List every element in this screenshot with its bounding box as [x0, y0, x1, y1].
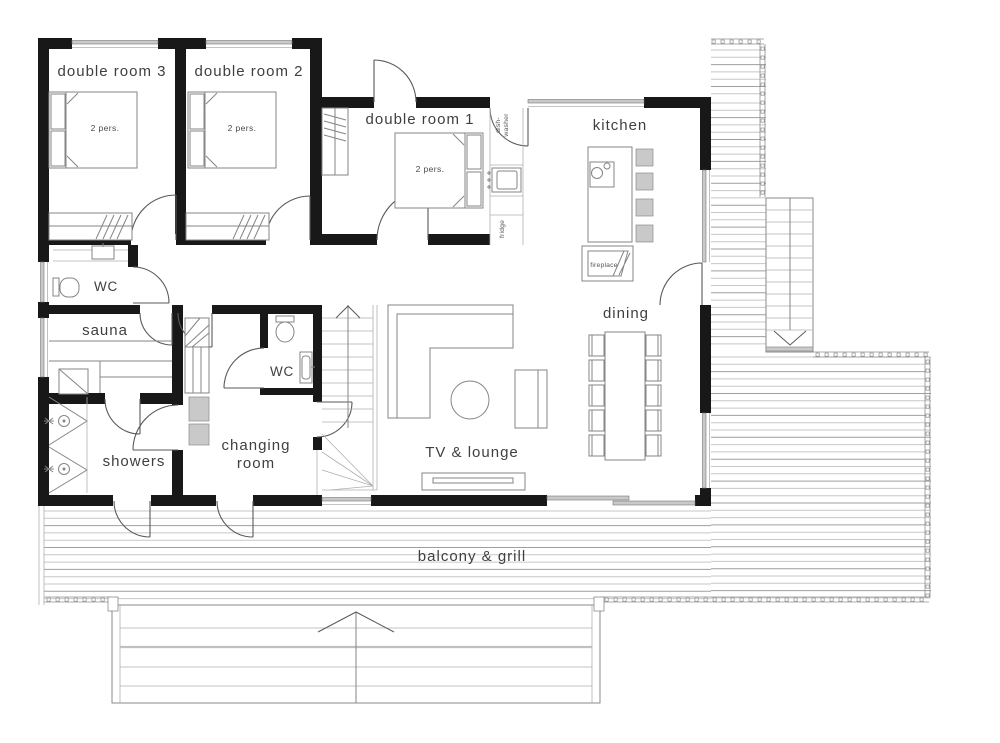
tv-stand: [422, 473, 525, 490]
toilet-icon: [276, 322, 294, 342]
label-showers: showers: [103, 453, 166, 470]
door-showers-balcony: [114, 501, 150, 537]
window-right-kitchen: [700, 170, 711, 262]
coffee-table: [451, 381, 489, 419]
window-changing-room: [322, 495, 371, 506]
railing-post: [594, 597, 604, 611]
label-capacity-room1: 2 pers.: [416, 164, 445, 174]
toilet-icon: [60, 278, 79, 297]
window-lounge-slider: [547, 495, 695, 506]
label-double-room-1: double room 1: [366, 111, 475, 128]
label-wc-main: WC: [94, 279, 118, 294]
label-kitchen: kitchen: [593, 117, 648, 134]
window-sauna-left: [38, 318, 49, 377]
floor-plan-page: double room 3 double room 2 double room …: [0, 0, 1000, 743]
balcony-left-edge: [39, 506, 44, 605]
window-wc-left: [38, 262, 49, 302]
label-dishwasher-line1: dish-: [495, 117, 502, 133]
label-changing-room-line2: room: [237, 455, 275, 472]
label-capacity-room2: 2 pers.: [228, 123, 257, 133]
window-double-room-3: [72, 38, 158, 49]
window-double-room-2: [206, 38, 292, 49]
label-fridge: fridge: [499, 220, 506, 238]
lockers-shelves: [185, 318, 209, 393]
kitchen-island: [588, 147, 632, 242]
label-balcony-grill: balcony & grill: [418, 548, 526, 565]
exterior-stairs-east: [766, 198, 813, 352]
label-changing-room-line1: changing: [222, 437, 291, 454]
changing-benches: [189, 397, 209, 445]
dining-table: [605, 332, 645, 460]
wardrobe-double-room-3: [49, 213, 132, 240]
railing-post: [108, 597, 118, 611]
front-stairs-south: [108, 597, 604, 703]
label-sauna: sauna: [82, 322, 128, 339]
label-dining: dining: [603, 305, 649, 322]
wardrobe-double-room-1: [322, 108, 348, 175]
label-double-room-2: double room 2: [195, 63, 304, 80]
label-wc-small: WC: [270, 364, 294, 379]
wardrobe-double-room-2: [186, 213, 269, 240]
label-tv-lounge: TV & lounge: [425, 444, 519, 461]
label-fireplace: fireplace: [590, 262, 618, 269]
armchair: [515, 370, 547, 428]
label-double-room-3: double room 3: [58, 63, 167, 80]
window-right-dining: [700, 413, 711, 488]
label-capacity-room3: 2 pers.: [91, 123, 120, 133]
window-kitchen: [528, 97, 644, 108]
floor-plan-drawing: double room 3 double room 2 double room …: [0, 0, 1000, 743]
door-changing-balcony: [217, 501, 253, 537]
label-dishwasher-line2: washer: [503, 113, 510, 138]
sink-icon: [92, 246, 114, 259]
